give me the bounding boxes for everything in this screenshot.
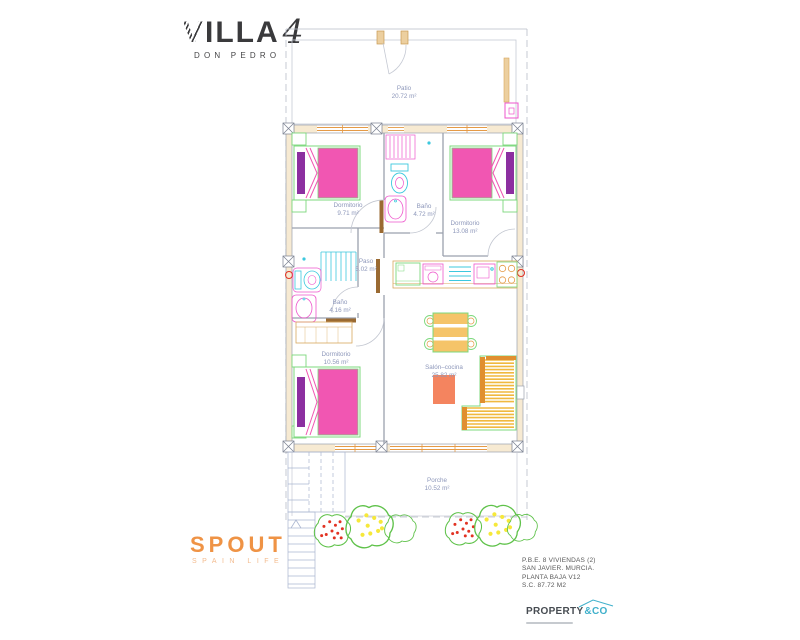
room-label-dormitorio1-area: 9.71 m² (337, 210, 358, 217)
patio-area (292, 31, 518, 124)
property-logo-tagline-bar (526, 622, 573, 624)
room-label-dormitorio3-name: Dormitorio (321, 351, 351, 358)
bed-bedroom1 (292, 133, 360, 212)
door-arc-bedroom3 (356, 318, 384, 346)
radiator (321, 252, 356, 281)
room-label-bano2-name: Baño (333, 299, 348, 306)
plants (314, 505, 537, 547)
bed-bedroom3 (292, 355, 360, 438)
spout-logo-subtitle: SPAIN LIFE (192, 558, 286, 565)
project-info-line-1: P.B.E. 8 VIVIENDAS (2) (522, 557, 596, 565)
rug (433, 375, 455, 404)
room-label-patio-name: Patio (397, 85, 412, 92)
closet (296, 322, 352, 343)
room-label-paso-name: Paso (359, 258, 374, 265)
patio-gate (377, 31, 408, 74)
drain-marker (427, 141, 430, 144)
room-label-dormitorio3-area: 10.56 m² (324, 359, 349, 366)
window-north-bathroom1 (388, 126, 404, 133)
kitchen-counter (393, 261, 517, 288)
property-logo-row: PROPERTY &CO (526, 607, 608, 617)
shower (386, 135, 415, 159)
patio-wall-segment (504, 58, 509, 102)
door-arc-bedroom2 (488, 229, 515, 256)
room-label-porche-area: 10.52 m² (425, 485, 450, 492)
room-label-dormitorio1-name: Dormitorio (333, 202, 363, 209)
window-south-bedroom3 (335, 444, 376, 452)
project-info-line-3: PLANTA BAJA V12 (522, 574, 596, 582)
project-info-line-4: S.C. 87.72 M2 (522, 582, 596, 590)
window-north-bedroom1 (317, 125, 368, 133)
project-info-block: P.B.E. 8 VIVIENDAS (2) SAN JAVIER. MURCI… (522, 557, 596, 591)
floorplan-page: VILLA 4 DON PEDRO (0, 0, 800, 640)
window-south-salon (390, 444, 487, 452)
dining-table (425, 313, 477, 352)
floorplan-drawing: Patio 20.72 m² Dormitorio 9.71 m² Baño 4… (0, 0, 800, 640)
stairs (288, 452, 345, 588)
spout-logo: SPOUT SPAIN LIFE (190, 534, 286, 565)
spout-logo-name: SPOUT (190, 534, 286, 556)
room-label-salon-area: 25.82 m² (432, 372, 457, 379)
bed-bedroom2 (450, 133, 517, 212)
project-info-line-2: SAN JAVIER. MURCIA. (522, 565, 596, 573)
window-north-bedroom2 (447, 125, 487, 133)
window-east-salon (517, 386, 524, 399)
porche-area (292, 452, 517, 516)
plant-green (385, 515, 417, 543)
door-leaf-paso (376, 259, 380, 293)
room-label-paso-area: 5.02 m² (355, 266, 376, 273)
toilet (391, 164, 408, 193)
room-label-bano2-area: 4.16 m² (329, 307, 350, 314)
property-roof-icon (578, 599, 614, 611)
room-label-bano1-name: Baño (417, 203, 432, 210)
room-label-salon-name: Salón–cocina (425, 364, 463, 371)
sink (385, 196, 406, 222)
toilet (293, 268, 321, 292)
drain-marker (302, 257, 305, 260)
room-label-patio-area: 20.72 m² (392, 93, 417, 100)
room-label-dormitorio2-name: Dormitorio (450, 220, 480, 227)
room-label-porche-name: Porche (427, 477, 447, 484)
room-label-dormitorio2-area: 13.08 m² (453, 228, 478, 235)
door-leaf-bedroom1 (380, 200, 384, 233)
stairs-direction-arrow (291, 520, 301, 528)
property-logo-name: PROPERTY (526, 607, 583, 617)
property-logo: PROPERTY &CO (526, 601, 608, 624)
sofa (462, 356, 516, 430)
room-label-bano1-area: 4.72 m² (413, 211, 434, 218)
plant-yellow-flowers (346, 506, 393, 548)
